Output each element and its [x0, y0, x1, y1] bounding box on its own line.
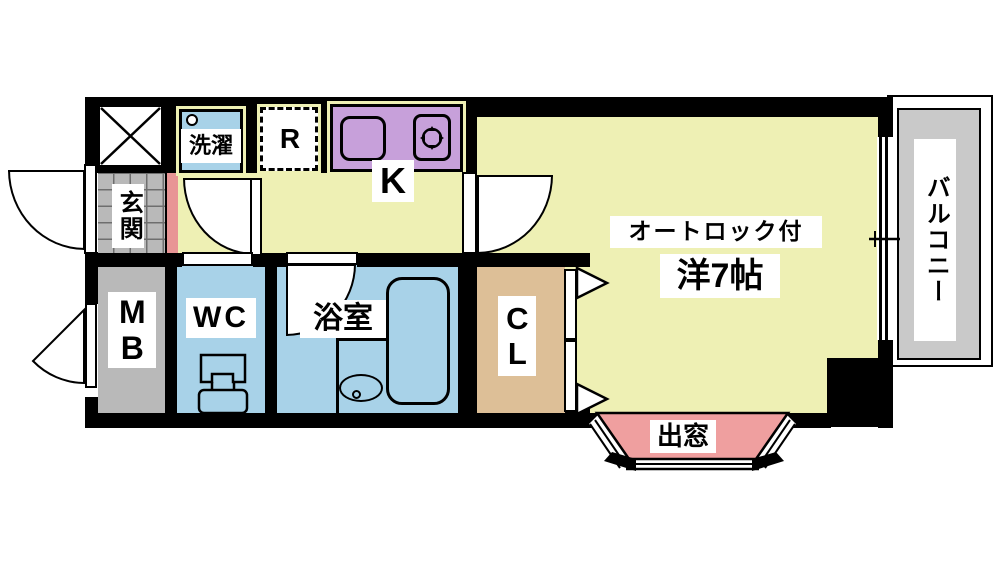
washer-door-circle: [186, 114, 198, 126]
bath-partition-h: [336, 338, 388, 341]
floorplan: 洗濯 R K 玄関 オートロック付 洋7帖 MB WC 浴室 CL 出窓 バルコ…: [0, 0, 1000, 562]
balcony-window-line-2: [885, 137, 888, 340]
shaft-x-box: [98, 105, 163, 167]
bath-sink: [339, 374, 383, 402]
kitchen-stove: [413, 114, 451, 161]
autolock-label: オートロック付: [610, 216, 822, 248]
toilet-label: WC: [186, 298, 256, 338]
entrance-label: 玄関: [112, 184, 144, 248]
meter-box-label: MB: [108, 292, 156, 368]
closet-door-panel-upper: [564, 269, 577, 340]
wall-bottom-right: [786, 413, 831, 428]
bathtub: [386, 277, 450, 405]
meter-box-door-leaf: [85, 303, 97, 388]
closet-label: CL: [498, 296, 536, 376]
balcony-window-line-1: [879, 137, 882, 340]
wall-bath-closet: [458, 253, 477, 428]
toilet-door: [182, 252, 253, 266]
wall-mb-wc: [165, 253, 177, 428]
kitchen-label: K: [372, 160, 414, 202]
entrance-door-swing: [8, 170, 85, 250]
laundry-label: 洗濯: [181, 129, 241, 163]
closet-door-panel-lower: [564, 340, 577, 412]
refrigerator-label: R: [275, 120, 305, 158]
wall-bottom-left: [85, 413, 598, 428]
wall-right-bottom-stub: [878, 338, 893, 428]
wall-left-1: [85, 97, 98, 167]
balcony-label: バルコニー: [914, 139, 956, 341]
entrance-door-leaf: [84, 164, 97, 254]
wall-top-main: [470, 97, 893, 117]
wall-closet-top: [477, 253, 590, 267]
toilet-floor: [177, 265, 265, 415]
wall-right-top-stub: [878, 97, 893, 139]
bay-window-label: 出窓: [650, 420, 716, 453]
kitchen-sink: [340, 116, 386, 161]
main-room-label: 洋7帖: [660, 254, 780, 298]
room-door-leaf: [462, 172, 477, 254]
hall-door-leaf: [250, 178, 262, 256]
bath-sink-drain: [352, 390, 361, 399]
wall-wc-bath: [265, 253, 277, 428]
bathroom-label: 浴室: [300, 300, 386, 338]
entrance-step: [165, 171, 178, 255]
bath-partition-v: [336, 338, 339, 415]
